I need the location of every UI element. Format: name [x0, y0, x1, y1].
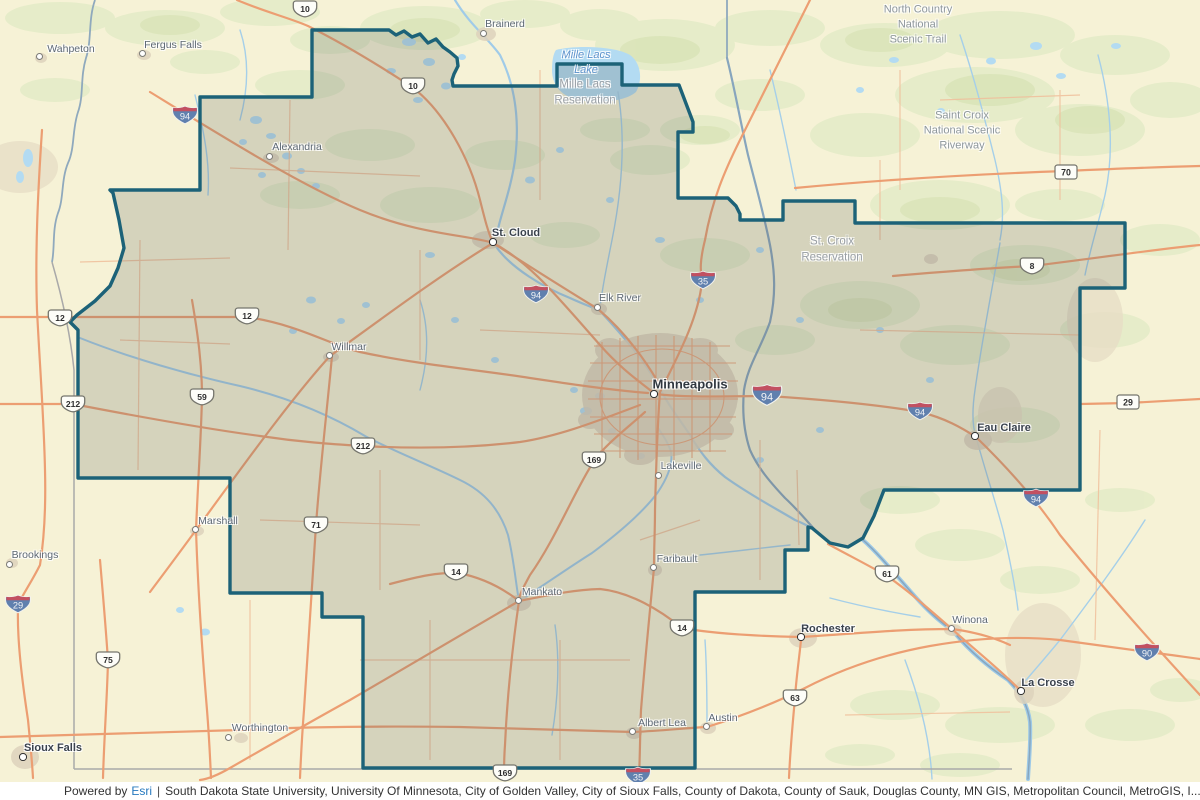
attribution-bar: Powered by Esri | South Dakota State Uni…: [0, 782, 1200, 800]
basemap: [0, 0, 1200, 782]
powered-by-text: Powered by: [64, 784, 127, 798]
map-viewport: Wahpeton Fergus Falls Brainerd Alexandri…: [0, 0, 1200, 800]
attribution-sources: South Dakota State University, Universit…: [165, 784, 1200, 798]
esri-link[interactable]: Esri: [131, 784, 152, 798]
attribution-separator: |: [157, 784, 160, 798]
map-canvas[interactable]: Wahpeton Fergus Falls Brainerd Alexandri…: [0, 0, 1200, 782]
